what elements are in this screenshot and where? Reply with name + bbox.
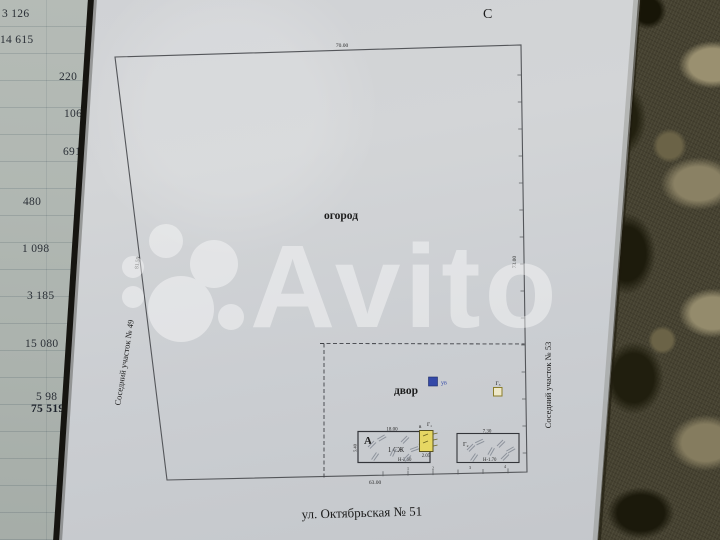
utility-square bbox=[429, 377, 438, 386]
annex-rect bbox=[420, 431, 434, 452]
dim-top-label: 70.00 bbox=[336, 43, 349, 49]
outbuilding-square bbox=[494, 388, 503, 397]
watermark-group: Avito bbox=[122, 221, 561, 353]
plan-drawing-svg: С 70.00 63.00 81.50 73.00 1 2 3 4 bbox=[0, 0, 720, 540]
street-label: ул. Октябрьская № 51 bbox=[301, 503, 422, 521]
watermark-logo-circle bbox=[218, 304, 244, 330]
photo-of-plot-plan: { "plan": { "north_label": "С", "garden_… bbox=[0, 0, 720, 540]
north-indicator: С bbox=[483, 7, 492, 22]
annex-letter-small: в bbox=[419, 425, 422, 430]
outbuilding-letter: Г₃ bbox=[495, 381, 500, 387]
watermark-text: Avito bbox=[250, 221, 561, 353]
point-label: 2 bbox=[432, 466, 434, 471]
house-dim-top: 18.00 bbox=[386, 428, 398, 433]
point-label: 4 bbox=[504, 464, 506, 469]
watermark-logo-circle bbox=[148, 276, 214, 342]
neighbor-left-label: Соседний участок № 49 bbox=[112, 319, 135, 406]
house-dim-side: 5.40 bbox=[353, 443, 358, 452]
watermark-logo-circle bbox=[149, 224, 183, 258]
annex-dim: 2.05 bbox=[422, 454, 431, 459]
annex-letter: Г₁ bbox=[427, 422, 432, 428]
shed-dim-top: 7.30 bbox=[483, 430, 492, 435]
yard-label: двор bbox=[394, 385, 418, 397]
house-letter: А bbox=[364, 435, 372, 447]
point-label: 3 bbox=[469, 465, 471, 470]
dim-bottom-label: 63.00 bbox=[369, 480, 382, 486]
paper-edge-shadow bbox=[60, 0, 95, 540]
neighbor-right-label: Соседний участок № 53 bbox=[543, 342, 553, 429]
watermark-logo-circle bbox=[122, 256, 144, 278]
utility-label: ув bbox=[441, 381, 447, 387]
point-label: 1 bbox=[407, 466, 409, 471]
paper-right-edge-shade bbox=[595, 0, 636, 540]
house-height-mark: Н-2.60 bbox=[398, 458, 412, 463]
shed-height-mark: Н-1.70 bbox=[483, 458, 497, 463]
house-type-label: 1 СЖ bbox=[388, 446, 405, 454]
paper-right-edge bbox=[599, 0, 640, 540]
paper-left-edge bbox=[56, 0, 91, 540]
shed-letter: Г₂ bbox=[463, 442, 469, 448]
watermark-logo-circle bbox=[122, 286, 144, 308]
